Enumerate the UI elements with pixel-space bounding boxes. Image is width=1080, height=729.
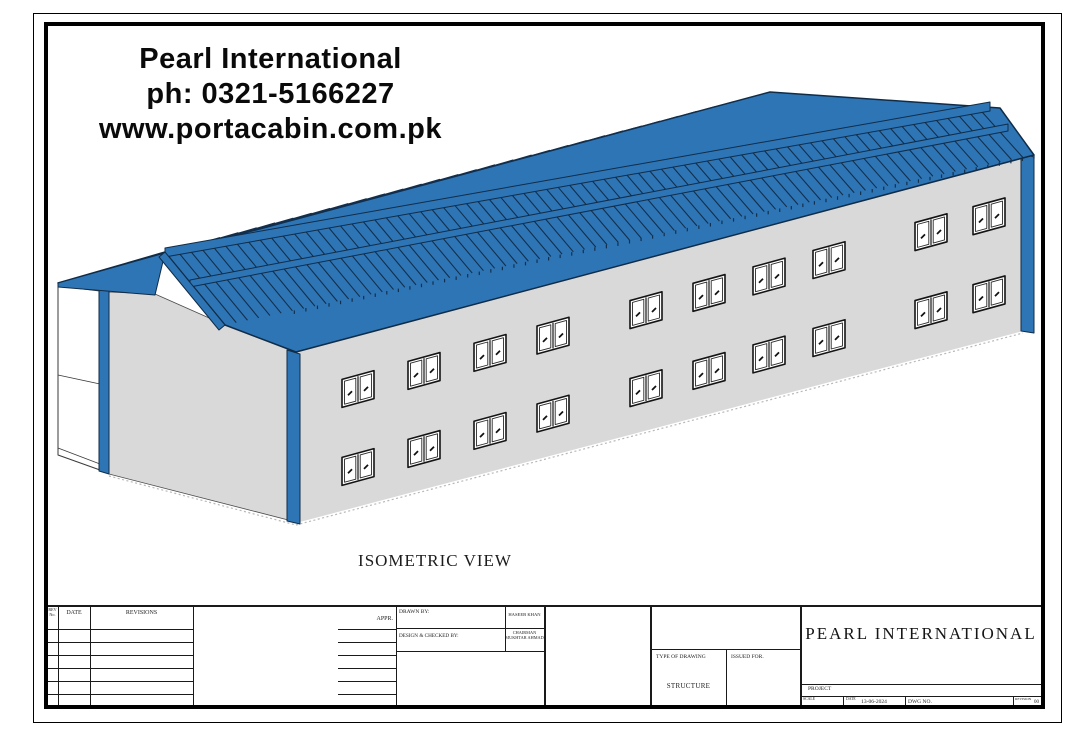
revision-value: 00: [1013, 700, 1039, 705]
titleblock-line: [801, 696, 1041, 697]
titleblock-line: [338, 642, 396, 643]
titleblock-line: [544, 605, 546, 705]
type-of-drawing-label: TYPE OF DRAWING: [656, 654, 706, 660]
watermark-company-name: Pearl International: [78, 42, 463, 77]
issued-for-label: ISSUED FOR.: [731, 654, 764, 660]
project-label: PROJECT: [808, 686, 831, 692]
dwg-no-label: DWG NO.: [908, 699, 932, 705]
titleblock-line: [801, 684, 1041, 685]
titleblock-line: [48, 629, 193, 630]
titleblock-line: [396, 651, 545, 652]
watermark-website: www.portacabin.com.pk: [78, 112, 463, 147]
titleblock-line: [48, 655, 193, 656]
titleblock-line: [48, 668, 193, 669]
drawn-by-label: DRAWN BY:: [399, 609, 429, 615]
watermark-phone: ph: 0321-5166227: [78, 77, 463, 112]
titleblock-line: [651, 649, 801, 650]
rev-no-header: REV No.: [47, 607, 58, 617]
titleblock-line: [48, 694, 193, 695]
date-value: 13-06-2024: [843, 699, 905, 705]
type-of-drawing-value: STRUCTURE: [651, 682, 726, 690]
titleblock-line: [396, 628, 545, 629]
titleblock-line: [650, 605, 652, 705]
company-watermark: Pearl International ph: 0321-5166227 www…: [78, 42, 463, 147]
drawing-sheet: Pearl International ph: 0321-5166227 www…: [0, 0, 1080, 729]
titleblock-line: [905, 696, 906, 705]
date-column-header: DATE: [58, 610, 90, 616]
appr-column-header: APPR.: [336, 616, 393, 622]
titleblock-line: [338, 629, 396, 630]
titleblock-line: [800, 605, 802, 705]
titleblock-line: [1013, 696, 1014, 705]
scale-label: SCALE: [803, 697, 815, 701]
titleblock-line: [338, 668, 396, 669]
view-caption: ISOMETRIC VIEW: [350, 551, 520, 571]
titleblock-line: [843, 696, 844, 705]
titleblock-line: [338, 655, 396, 656]
company-name-title: PEARL INTERNATIONAL: [801, 624, 1041, 644]
titleblock-line: [338, 681, 396, 682]
titleblock-line: [48, 681, 193, 682]
titleblock-line: [338, 694, 396, 695]
titleblock-line: [726, 649, 727, 705]
titleblock-line: [48, 642, 193, 643]
drawn-by-value: HASEEB KHAN: [505, 612, 544, 617]
revisions-column-header: REVISIONS: [90, 610, 193, 616]
design-checked-value: CHAIRMAN MUKHTAR AHMAD: [504, 630, 545, 641]
titleblock-line: [396, 605, 397, 705]
titleblock-line: [193, 605, 194, 705]
design-checked-label: DESIGN & CHECKED BY:: [399, 633, 459, 639]
